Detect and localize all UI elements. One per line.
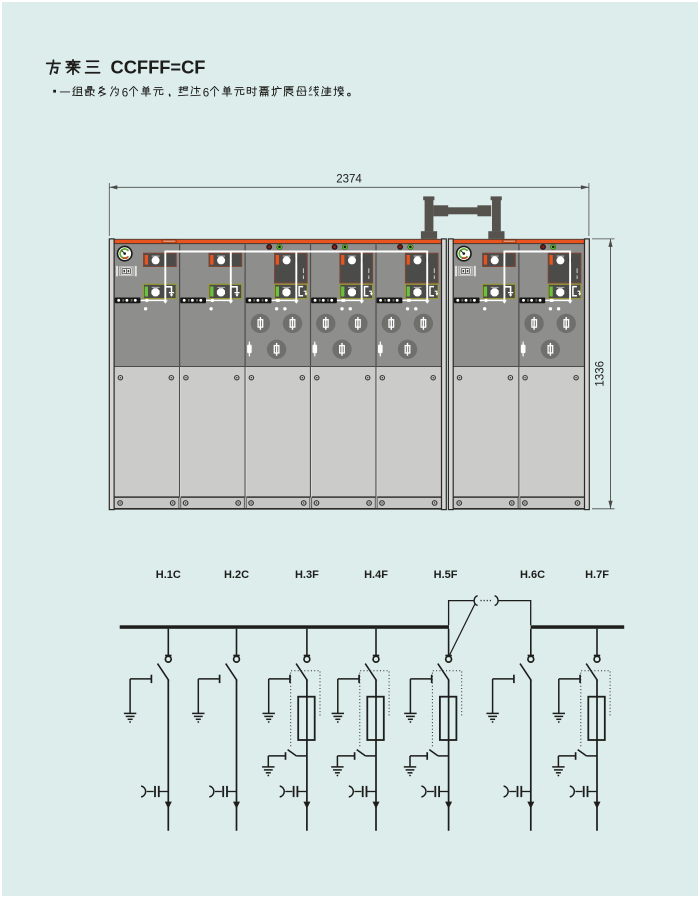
svg-text:6: 6 <box>203 86 209 99</box>
svg-text:H.5F: H.5F <box>434 569 458 581</box>
svg-text:2374: 2374 <box>336 174 362 186</box>
svg-text:6: 6 <box>122 86 128 99</box>
svg-text:H.7F: H.7F <box>585 569 609 581</box>
svg-text:H.3F: H.3F <box>295 569 319 581</box>
svg-text:CCFFF=CF: CCFFF=CF <box>111 57 206 78</box>
svg-text:H.1C: H.1C <box>156 569 181 581</box>
svg-text:H.2C: H.2C <box>224 569 249 581</box>
svg-text:1336: 1336 <box>595 361 607 387</box>
svg-text:H.4F: H.4F <box>364 569 388 581</box>
svg-text:H.6C: H.6C <box>520 569 545 581</box>
